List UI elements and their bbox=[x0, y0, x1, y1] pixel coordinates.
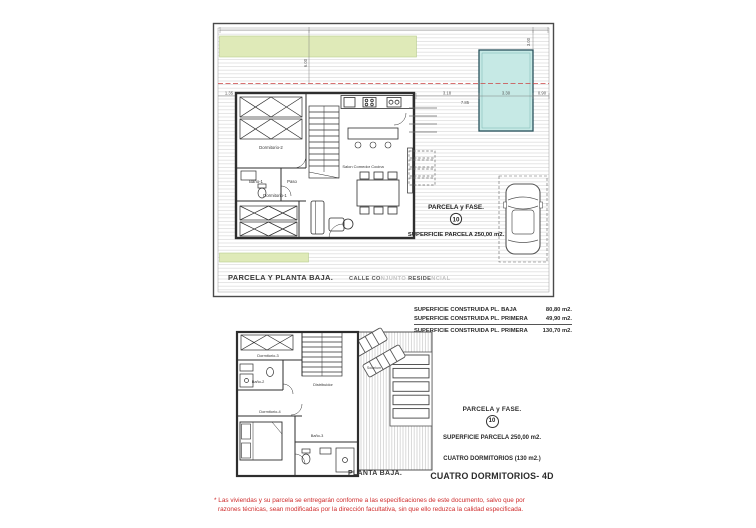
info-parcel-fase: PARCELA y FASE. bbox=[424, 406, 560, 413]
floor-plan-drawing: Dormitorio-3 Baño-2 Distribuidor Dormito… bbox=[228, 324, 440, 480]
room-label-dist: Distribuidor bbox=[313, 382, 333, 387]
parcel-area-label: SUPERFICIE PARCELA 250,00 m2. bbox=[408, 232, 505, 238]
dim-b: 0.90 bbox=[538, 91, 547, 96]
disclaimer-line2: razones técnicas, sean modificadas por l… bbox=[214, 506, 564, 515]
street-seg1: CALLE CO bbox=[349, 276, 381, 282]
car-icon bbox=[504, 184, 543, 254]
floor-plan-caption: PLANTA BAJA. bbox=[348, 470, 402, 477]
area-value: 130,70 m2. bbox=[543, 328, 572, 334]
kitchen bbox=[341, 96, 413, 109]
disclaimer-line1: * Las viviendas y su parcela se entregar… bbox=[214, 497, 564, 506]
room-label-salon: Salon Comedor Cocina bbox=[342, 164, 384, 169]
dim-v2: 3.00 bbox=[526, 37, 531, 46]
room-label-solarium: Solarium bbox=[367, 366, 381, 370]
area-label: SUPERFICIE CONSTRUIDA PL. PRIMERA bbox=[414, 328, 528, 334]
dim-left: 1.35 bbox=[225, 91, 234, 96]
site-plan-svg: 1.35 3.18 3.30 0.90 7.85 6.00 3.00 bbox=[211, 18, 557, 300]
house-ground-floor bbox=[236, 93, 414, 238]
site-plan-drawing: 1.35 3.18 3.30 0.90 7.85 6.00 3.00 bbox=[211, 18, 557, 300]
dim-v1: 6.00 bbox=[303, 58, 308, 67]
area-label: SUPERFICIE CONSTRUIDA PL. BAJA bbox=[414, 307, 517, 313]
info-parcel-number: 10 bbox=[489, 418, 496, 424]
info-type: CUATRO DORMITORIOS- 4D bbox=[424, 471, 560, 481]
street-label: CALLE CONJUNTO RESIDENCIAL bbox=[349, 276, 450, 282]
room-label-bano2: Baño-2 bbox=[252, 379, 265, 384]
street-seg3: RESIDE bbox=[408, 276, 431, 282]
info-parcel-number-circle: 10 bbox=[486, 415, 499, 428]
area-row-baja: SUPERFICIE CONSTRUIDA PL. BAJA 80,80 m2. bbox=[414, 306, 572, 315]
area-value: 49,90 m2. bbox=[546, 316, 572, 322]
street-seg2: NJUNTO bbox=[381, 276, 408, 282]
disclaimer: * Las viviendas y su parcela se entregar… bbox=[214, 497, 564, 515]
area-row-primera: SUPERFICIE CONSTRUIDA PL. PRIMERA 49,90 … bbox=[414, 315, 572, 325]
room-label-dorm4: Dormitorio-4 bbox=[259, 409, 281, 414]
parcel-number: 10 bbox=[453, 216, 460, 223]
parcel-fase-label: PARCELA y FASE. bbox=[428, 204, 484, 211]
site-plan-caption: PARCELA Y PLANTA BAJA. bbox=[228, 273, 333, 282]
dim-pool: 3.30 bbox=[502, 91, 511, 96]
room-label-bano3: Baño-3 bbox=[311, 433, 324, 438]
built-areas-table: SUPERFICIE CONSTRUIDA PL. BAJA 80,80 m2.… bbox=[414, 306, 572, 336]
garden-strip-bottom bbox=[220, 253, 309, 262]
room-label-dorm2: Dormitorio-2 bbox=[259, 145, 283, 150]
area-label: SUPERFICIE CONSTRUIDA PL. PRIMERA bbox=[414, 316, 528, 322]
dim-a: 3.18 bbox=[443, 91, 452, 96]
parcel-info-block: PARCELA y FASE. 10 SUPERFICIE PARCELA 25… bbox=[424, 406, 560, 481]
room-label-bano1: Baño-1 bbox=[249, 179, 263, 184]
area-value: 80,80 m2. bbox=[546, 307, 572, 313]
room-label-dorm1: Dormitorio-1 bbox=[263, 193, 287, 198]
area-row-total: SUPERFICIE CONSTRUIDA PL. PRIMERA 130,70… bbox=[414, 325, 572, 336]
house-first-floor bbox=[237, 332, 358, 476]
room-label-dorm3: Dormitorio-3 bbox=[257, 353, 278, 358]
info-parcel-area: SUPERFICIE PARCELA 250,00 m2. bbox=[424, 435, 560, 441]
info-bedrooms: CUATRO DORMITORIOS (130 m2.) bbox=[424, 456, 560, 462]
page: EUROPE HOMES bbox=[0, 0, 756, 528]
dim-total: 7.85 bbox=[461, 100, 470, 105]
room-label-paso: Paso bbox=[287, 179, 297, 184]
floor-plan-svg: Dormitorio-3 Baño-2 Distribuidor Dormito… bbox=[228, 324, 440, 480]
garden-strip-top bbox=[220, 36, 417, 57]
street-seg4: NCIAL bbox=[431, 276, 450, 282]
